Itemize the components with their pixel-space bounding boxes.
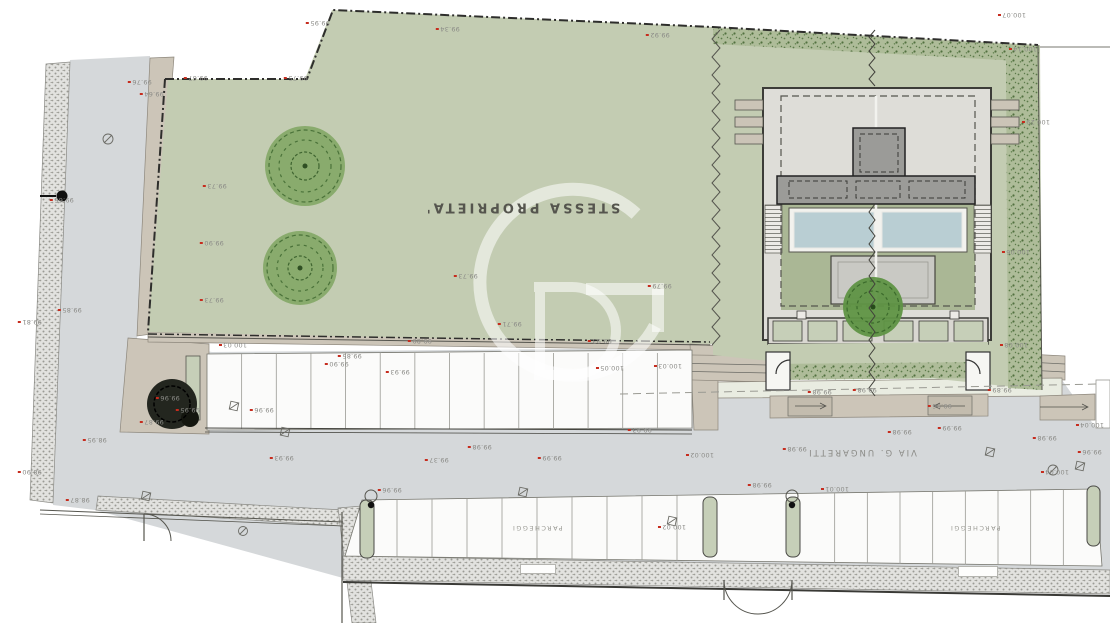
villa-building	[735, 88, 1019, 390]
lawn-tree	[265, 126, 345, 206]
plan-graphics	[0, 0, 1110, 623]
corner-notch	[1096, 380, 1110, 428]
front-hedge	[768, 362, 988, 380]
core-stem	[853, 128, 905, 178]
lawn-tree	[263, 231, 337, 305]
stairs-right	[974, 205, 991, 253]
gate-planter	[703, 497, 717, 557]
pool	[789, 208, 967, 252]
core-bar	[777, 176, 975, 204]
stairs-left	[765, 205, 782, 253]
gate-planter	[360, 500, 374, 558]
gate-planter	[1087, 486, 1100, 546]
site-plan: STESSA PROPRIETA' VIA G. UNGARETTI PARCH…	[0, 0, 1110, 623]
